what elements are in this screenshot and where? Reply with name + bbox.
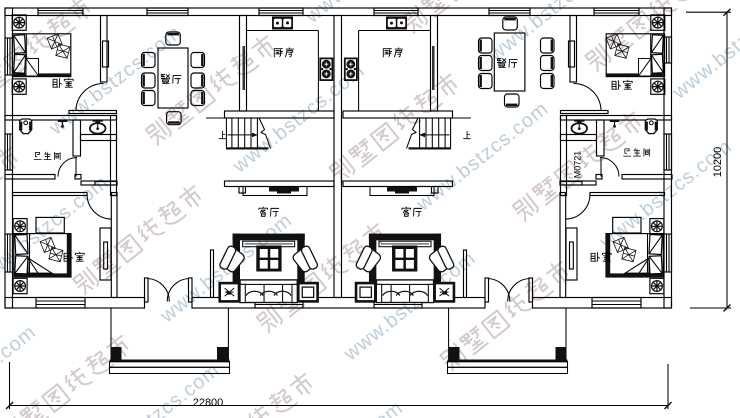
svg-text:M0721: M0721 (573, 151, 583, 179)
svg-text:10200: 10200 (712, 147, 724, 178)
svg-text:22800: 22800 (193, 397, 224, 409)
